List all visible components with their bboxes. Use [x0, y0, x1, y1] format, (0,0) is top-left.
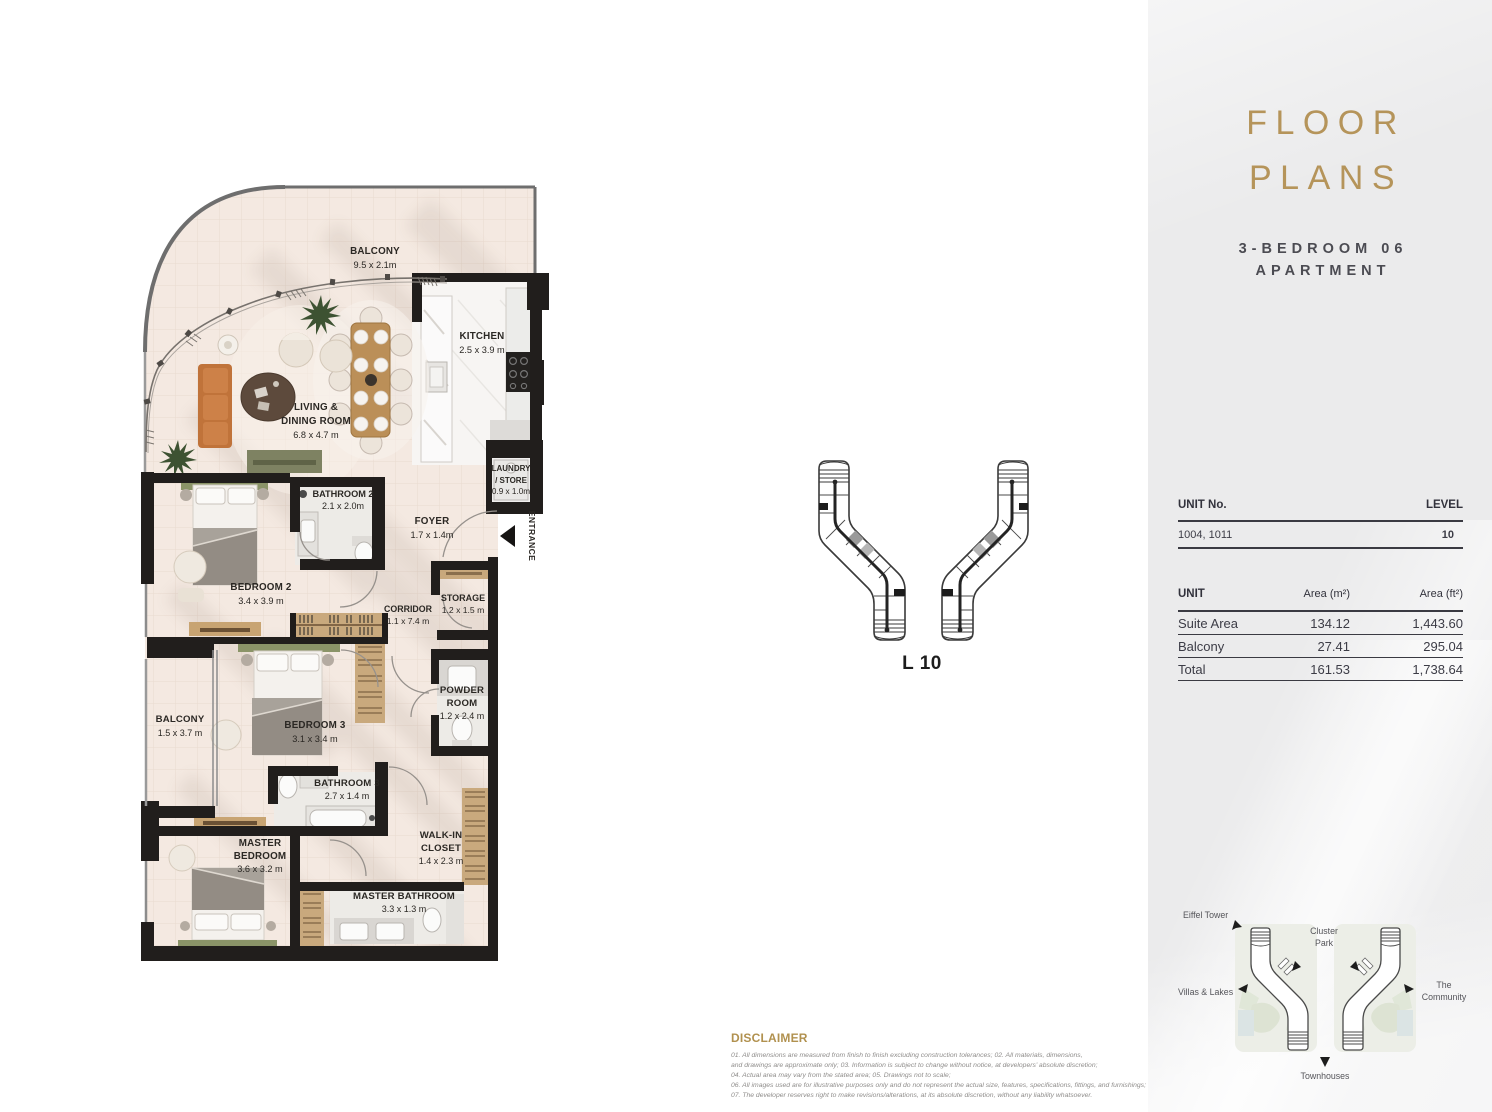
svg-text:1.2 x 2.4 m: 1.2 x 2.4 m — [440, 711, 485, 721]
svg-text:KITCHEN: KITCHEN — [460, 331, 505, 342]
svg-text:1.4 x 2.3 m: 1.4 x 2.3 m — [419, 856, 464, 866]
svg-text:Villas & Lakes: Villas & Lakes — [1178, 987, 1234, 997]
svg-text:BEDROOM: BEDROOM — [234, 851, 287, 862]
svg-text:MASTER BATHROOM: MASTER BATHROOM — [353, 891, 455, 902]
svg-text:CORRIDOR: CORRIDOR — [384, 604, 433, 614]
svg-text:Cluster: Cluster — [1310, 926, 1338, 936]
svg-text:BEDROOM 3: BEDROOM 3 — [284, 720, 345, 731]
svg-text:2.5 x 3.9 m: 2.5 x 3.9 m — [459, 345, 505, 355]
svg-text:Eiffel Tower: Eiffel Tower — [1183, 910, 1228, 920]
svg-text:6.8 x 4.7 m: 6.8 x 4.7 m — [293, 430, 339, 440]
svg-text:BATHROOM 3: BATHROOM 3 — [314, 778, 380, 789]
svg-text:POWDER: POWDER — [440, 685, 484, 696]
svg-text:LAUNDRY: LAUNDRY — [492, 464, 531, 473]
svg-text:BEDROOM 2: BEDROOM 2 — [230, 582, 291, 593]
svg-text:BATHROOM 2: BATHROOM 2 — [312, 489, 373, 499]
svg-text:1.7 x 1.4m: 1.7 x 1.4m — [411, 530, 454, 540]
svg-text:1.1 x 7.4 m: 1.1 x 7.4 m — [387, 616, 430, 626]
svg-text:1.2 x 1.5 m: 1.2 x 1.5 m — [442, 605, 485, 615]
svg-text:BALCONY: BALCONY — [350, 246, 400, 257]
svg-text:2.7 x 1.4 m: 2.7 x 1.4 m — [325, 791, 370, 801]
svg-text:Townhouses: Townhouses — [1301, 1071, 1351, 1081]
svg-text:3.4 x 3.9 m: 3.4 x 3.9 m — [238, 596, 284, 606]
svg-text:3.6 x 3.2 m: 3.6 x 3.2 m — [237, 864, 283, 874]
svg-text:STORAGE: STORAGE — [441, 593, 485, 603]
svg-text:Community: Community — [1422, 992, 1467, 1002]
svg-text:3.3 x 1.3 m: 3.3 x 1.3 m — [382, 904, 427, 914]
svg-text:Park: Park — [1315, 938, 1334, 948]
svg-text:The: The — [1436, 980, 1451, 990]
svg-text:3.1 x 3.4 m: 3.1 x 3.4 m — [292, 734, 338, 744]
svg-text:/ STORE: / STORE — [495, 476, 528, 485]
svg-text:ENTRANCE: ENTRANCE — [527, 511, 537, 561]
svg-text:WALK-IN: WALK-IN — [420, 830, 462, 841]
svg-text:DINING ROOM: DINING ROOM — [281, 416, 351, 427]
svg-text:9.5 x 2.1m: 9.5 x 2.1m — [354, 260, 397, 270]
svg-text:L 10: L 10 — [902, 653, 942, 674]
svg-text:1.5 x 3.7 m: 1.5 x 3.7 m — [158, 728, 203, 738]
svg-text:BALCONY: BALCONY — [156, 714, 205, 725]
svg-text:ROOM: ROOM — [447, 698, 478, 709]
svg-text:0.9 x 1.0m: 0.9 x 1.0m — [492, 487, 530, 496]
svg-text:MASTER: MASTER — [239, 838, 282, 849]
svg-text:2.1 x 2.0m: 2.1 x 2.0m — [322, 501, 364, 511]
svg-text:CLOSET: CLOSET — [421, 843, 461, 854]
svg-text:LIVING &: LIVING & — [294, 402, 338, 413]
svg-text:FOYER: FOYER — [415, 516, 450, 527]
